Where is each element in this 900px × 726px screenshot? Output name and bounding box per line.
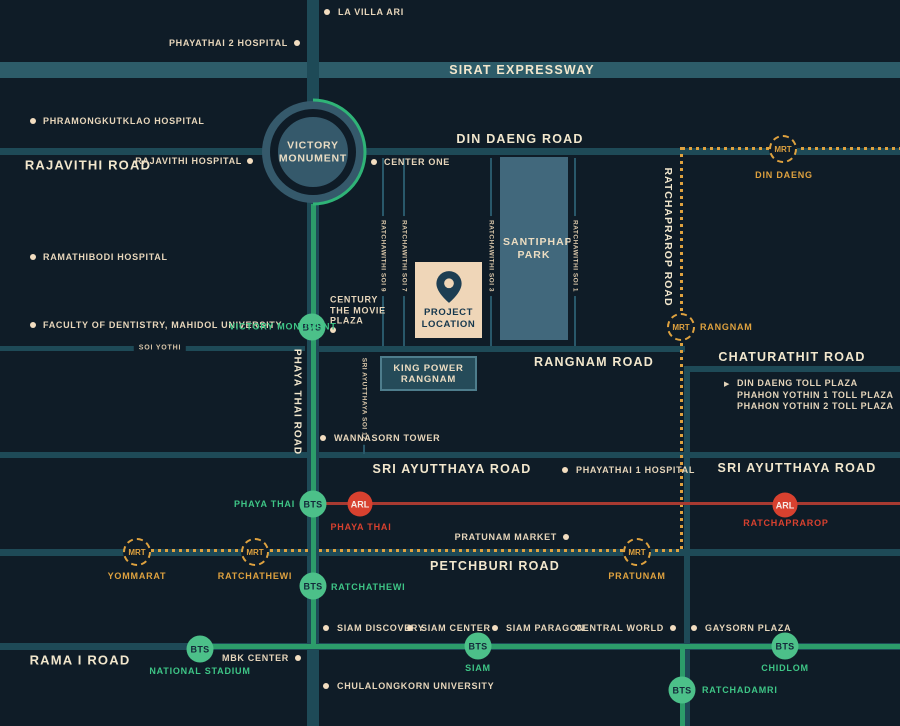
bts-victory-monument-label: VICTORY MONUMENT [229, 322, 295, 333]
poi-chulalongkorn-university: CHULALONGKORN UNIVERSITY [337, 681, 494, 691]
bts-victory-monument-text: VICTORY MONUMENT [229, 322, 295, 333]
mrt-pratunam-badge: MRT [623, 538, 651, 566]
label-petchburi-road: PETCHBURI ROAD [430, 559, 560, 573]
label-ratchawithi-soi-7: RATCHAWITHI SOI 7 [400, 216, 409, 296]
bts-siam-badge: BTS [465, 633, 492, 660]
poi-dot [691, 625, 697, 631]
poi-dot [563, 534, 569, 540]
poi-rajavithi-hospital: RAJAVITHI HOSPITAL [135, 156, 242, 166]
poi-dot [562, 467, 568, 473]
bts-ratchadamri-label: RATCHADAMRI [702, 685, 778, 695]
label-ratchawithi-soi-9: RATCHAWITHI SOI 9 [379, 216, 388, 296]
toll-plaza-item: PHAHON YOTHIN 2 TOLL PLAZA [737, 401, 894, 413]
mrt-rangnam-badge: MRT [667, 313, 695, 341]
project-location-marker: PROJECT LOCATION [415, 262, 482, 338]
label-ratchawithi-soi-1: RATCHAWITHI SOI 1 [571, 216, 580, 296]
label-rajavithi-road: RAJAVITHI ROAD [25, 158, 151, 173]
mrt-line-petchburi [137, 549, 682, 552]
poi-dot [30, 254, 36, 260]
poi-pratunam-market: PRATUNAM MARKET [455, 532, 557, 542]
toll-plaza-item: PHAHON YOTHIN 1 TOLL PLAZA [737, 390, 894, 402]
road-rangnam [313, 346, 685, 352]
mrt-rangnam-label: RANGNAM [700, 322, 753, 332]
poi-dot [324, 9, 330, 15]
victory-monument-label: VICTORY MONUMENT [267, 140, 359, 165]
poi-dot [30, 118, 36, 124]
project-location-label: PROJECT LOCATION [418, 307, 480, 330]
mrt-din-daeng-badge: MRT [769, 135, 797, 163]
mrt-line-ratchaprarop [680, 147, 683, 552]
poi-mbk-center: MBK CENTER [222, 653, 289, 663]
toll-arrow-icon: ▶ [724, 380, 729, 388]
bts-ratchadamri-badge: BTS [669, 677, 696, 704]
king-power-rangnam-label: KING POWER RANGNAM [389, 363, 469, 385]
arl-ratchaprarop-badge: ARL [773, 493, 798, 518]
santiphap-park: SANTIPHAP PARK [500, 157, 568, 340]
label-ratchaprarop-road: RATCHAPRAROP ROAD [662, 167, 674, 306]
poi-la-villa-ari: LA VILLA ARI [338, 7, 404, 17]
arl-phaya-thai-label: PHAYA THAI [330, 522, 391, 532]
arl-phaya-thai-badge: ARL [348, 492, 373, 517]
poi-dot [407, 625, 413, 631]
label-sirat-expressway: SIRAT EXPRESSWAY [449, 63, 595, 77]
mrt-ratchathewi-badge: MRT [241, 538, 269, 566]
poi-dot [323, 625, 329, 631]
road-chaturathit [690, 366, 900, 372]
bts-phaya-thai-badge: BTS [300, 491, 327, 518]
label-soi-yothi: SOI YOTHI [134, 345, 186, 352]
label-din-daeng-road: DIN DAENG ROAD [456, 132, 583, 146]
bts-ratchathewi-label: RATCHATHEWI [331, 582, 405, 592]
poi-dot [247, 158, 253, 164]
poi-central-world: CENTRAL WORLD [576, 623, 664, 633]
poi-dot [323, 683, 329, 689]
poi-dot [492, 625, 498, 631]
mrt-ratchathewi-label: RATCHATHEWI [218, 571, 292, 581]
poi-center-one: CENTER ONE [384, 157, 450, 167]
arl-line [322, 502, 900, 505]
label-sri-ayutthaya-soi-12: SRI AYUTTHAYA SOI 12 [360, 354, 369, 445]
poi-dot [320, 435, 326, 441]
poi-gaysorn-plaza: GAYSORN PLAZA [705, 623, 791, 633]
poi-dot [670, 625, 676, 631]
poi-dot [371, 159, 377, 165]
bts-phaya-thai-label: PHAYA THAI [234, 499, 295, 509]
toll-plaza-list: DIN DAENG TOLL PLAZA PHAHON YOTHIN 1 TOL… [737, 378, 894, 413]
bts-national-stadium-label: NATIONAL STADIUM [149, 666, 250, 676]
bts-chidlom-badge: BTS [772, 633, 799, 660]
poi-century-the-movie-plaza: CENTURY THE MOVIE PLAZA [330, 294, 394, 326]
poi-siam-paragon: SIAM PARAGON [506, 623, 585, 633]
label-phaya-thai-road: PHAYA THAI ROAD [292, 349, 303, 455]
poi-wannasorn-tower: WANNASORN TOWER [334, 433, 440, 443]
map-pin-icon [435, 270, 463, 304]
poi-phayathai-2-hospital: PHAYATHAI 2 HOSPITAL [169, 38, 288, 48]
poi-century-label: CENTURY THE MOVIE PLAZA [330, 294, 394, 326]
label-rama-i-road: RAMA I ROAD [30, 653, 131, 668]
bts-siam-label: SIAM [465, 663, 491, 673]
bts-chidlom-label: CHIDLOM [761, 663, 809, 673]
mrt-din-daeng-label: DIN DAENG [755, 170, 813, 180]
road-sri-ayutthaya [0, 452, 900, 458]
label-chaturathit-road: CHATURATHIT ROAD [718, 350, 865, 364]
label-sri-ayutthaya-road-east: SRI AYUTTHAYA ROAD [718, 461, 877, 475]
poi-dot [295, 655, 301, 661]
label-sri-ayutthaya-road-west: SRI AYUTTHAYA ROAD [373, 462, 532, 476]
mrt-yommarat-badge: MRT [123, 538, 151, 566]
poi-dot [30, 322, 36, 328]
poi-phayathai-1-hospital: PHAYATHAI 1 HOSPITAL [576, 465, 695, 475]
poi-phramongkutklao-hospital: PHRAMONGKUTKLAO HOSPITAL [43, 116, 205, 126]
label-rangnam-road: RANGNAM ROAD [534, 355, 654, 369]
bts-ratchathewi-badge: BTS [300, 573, 327, 600]
poi-siam-center: SIAM CENTER [421, 623, 491, 633]
arl-ratchaprarop-label: RATCHAPRAROP [743, 518, 828, 528]
mrt-yommarat-label: YOMMARAT [108, 571, 167, 581]
poi-dot [294, 40, 300, 46]
toll-plaza-item: DIN DAENG TOLL PLAZA [737, 378, 894, 390]
santiphap-park-label: SANTIPHAP PARK [503, 236, 565, 262]
transit-map: VICTORY MONUMENT SANTIPHAP PARK PROJECT … [0, 0, 900, 726]
bts-national-stadium-badge: BTS [187, 636, 214, 663]
label-ratchawithi-soi-3: RATCHAWITHI SOI 3 [487, 216, 496, 296]
poi-ramathibodi-hospital: RAMATHIBODI HOSPITAL [43, 252, 168, 262]
mrt-pratunam-label: PRATUNAM [608, 571, 665, 581]
king-power-rangnam: KING POWER RANGNAM [380, 356, 477, 391]
